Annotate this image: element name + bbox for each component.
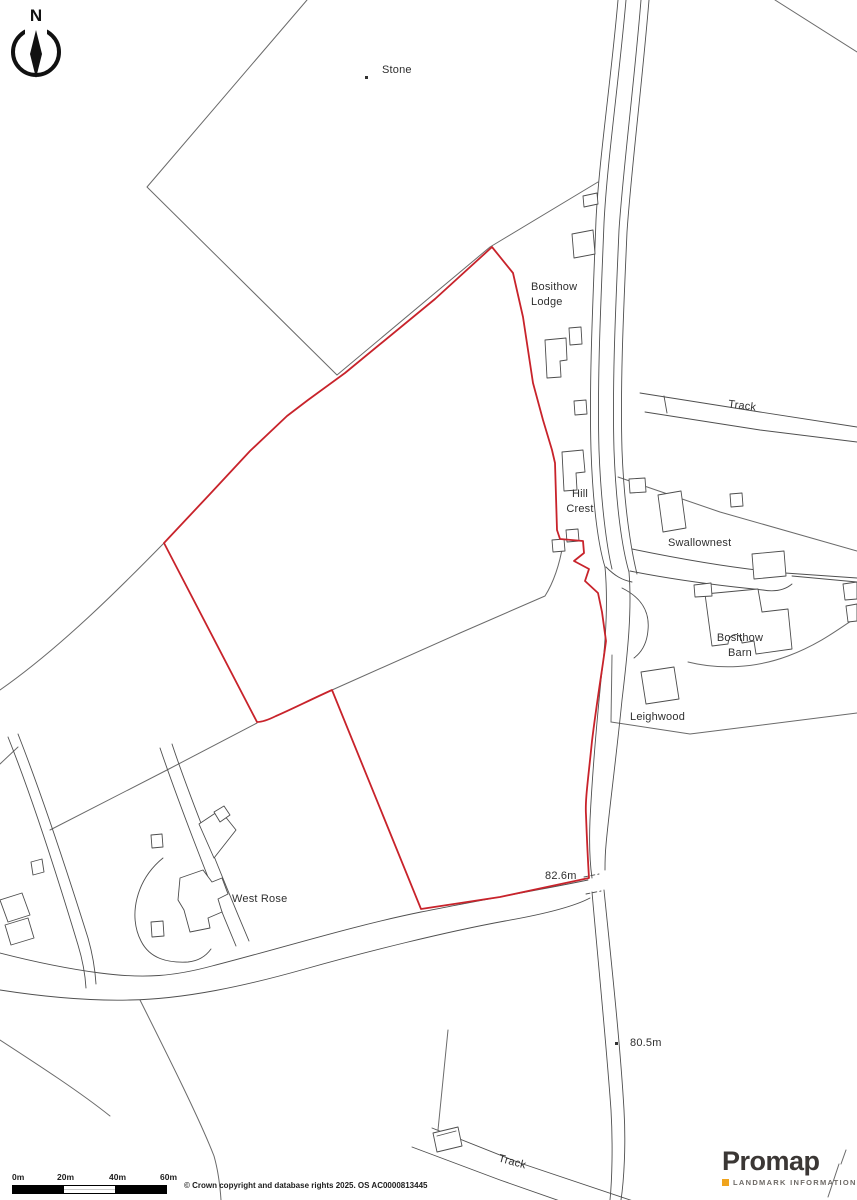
label-hill-crest: Hill Crest (560, 487, 600, 518)
label-west-rose: West Rose (232, 892, 287, 907)
promap-logo-text: Promap (722, 1148, 857, 1175)
label-track-north: Track (727, 397, 757, 416)
label-bosithow-lodge: Bosithow Lodge (531, 280, 577, 311)
point-symbols (365, 76, 618, 1045)
label-stone: Stone (382, 63, 412, 78)
label-spot-height-80: 80.5m (630, 1036, 662, 1051)
copyright-notice: © Crown copyright and database rights 20… (184, 1181, 427, 1190)
north-label: N (27, 6, 45, 26)
north-arrow: N (6, 4, 66, 96)
scale-tick-60: 60m (160, 1172, 177, 1182)
site-boundary (164, 247, 606, 909)
scale-tick-0: 0m (12, 1172, 24, 1182)
label-spot-height-82: 82.6m (545, 869, 577, 884)
promap-logo: Promap LANDMARK INFORMATION (722, 1148, 857, 1187)
brand-accent-icon (722, 1179, 729, 1186)
scale-bar: 0m 20m 40m 60m (10, 1172, 178, 1198)
scale-bar-graphic (12, 1185, 167, 1194)
map-canvas (0, 0, 857, 1200)
promap-tagline: LANDMARK INFORMATION (733, 1178, 857, 1187)
scale-tick-20: 20m (57, 1172, 74, 1182)
scale-tick-40: 40m (109, 1172, 126, 1182)
label-bosithow-barn: Bosithow Barn (712, 631, 768, 662)
map-page: N Stone Bosithow Lodge Track Hill Crest … (0, 0, 857, 1200)
buildings (0, 193, 857, 1152)
label-swallownest: Swallownest (668, 536, 731, 551)
label-leighwood: Leighwood (630, 710, 685, 725)
